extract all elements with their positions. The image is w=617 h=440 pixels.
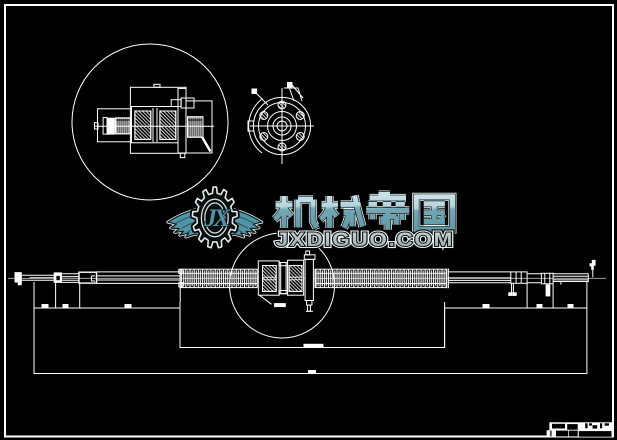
- svg-text:JXDIGUO.COM: JXDIGUO.COM: [276, 230, 454, 251]
